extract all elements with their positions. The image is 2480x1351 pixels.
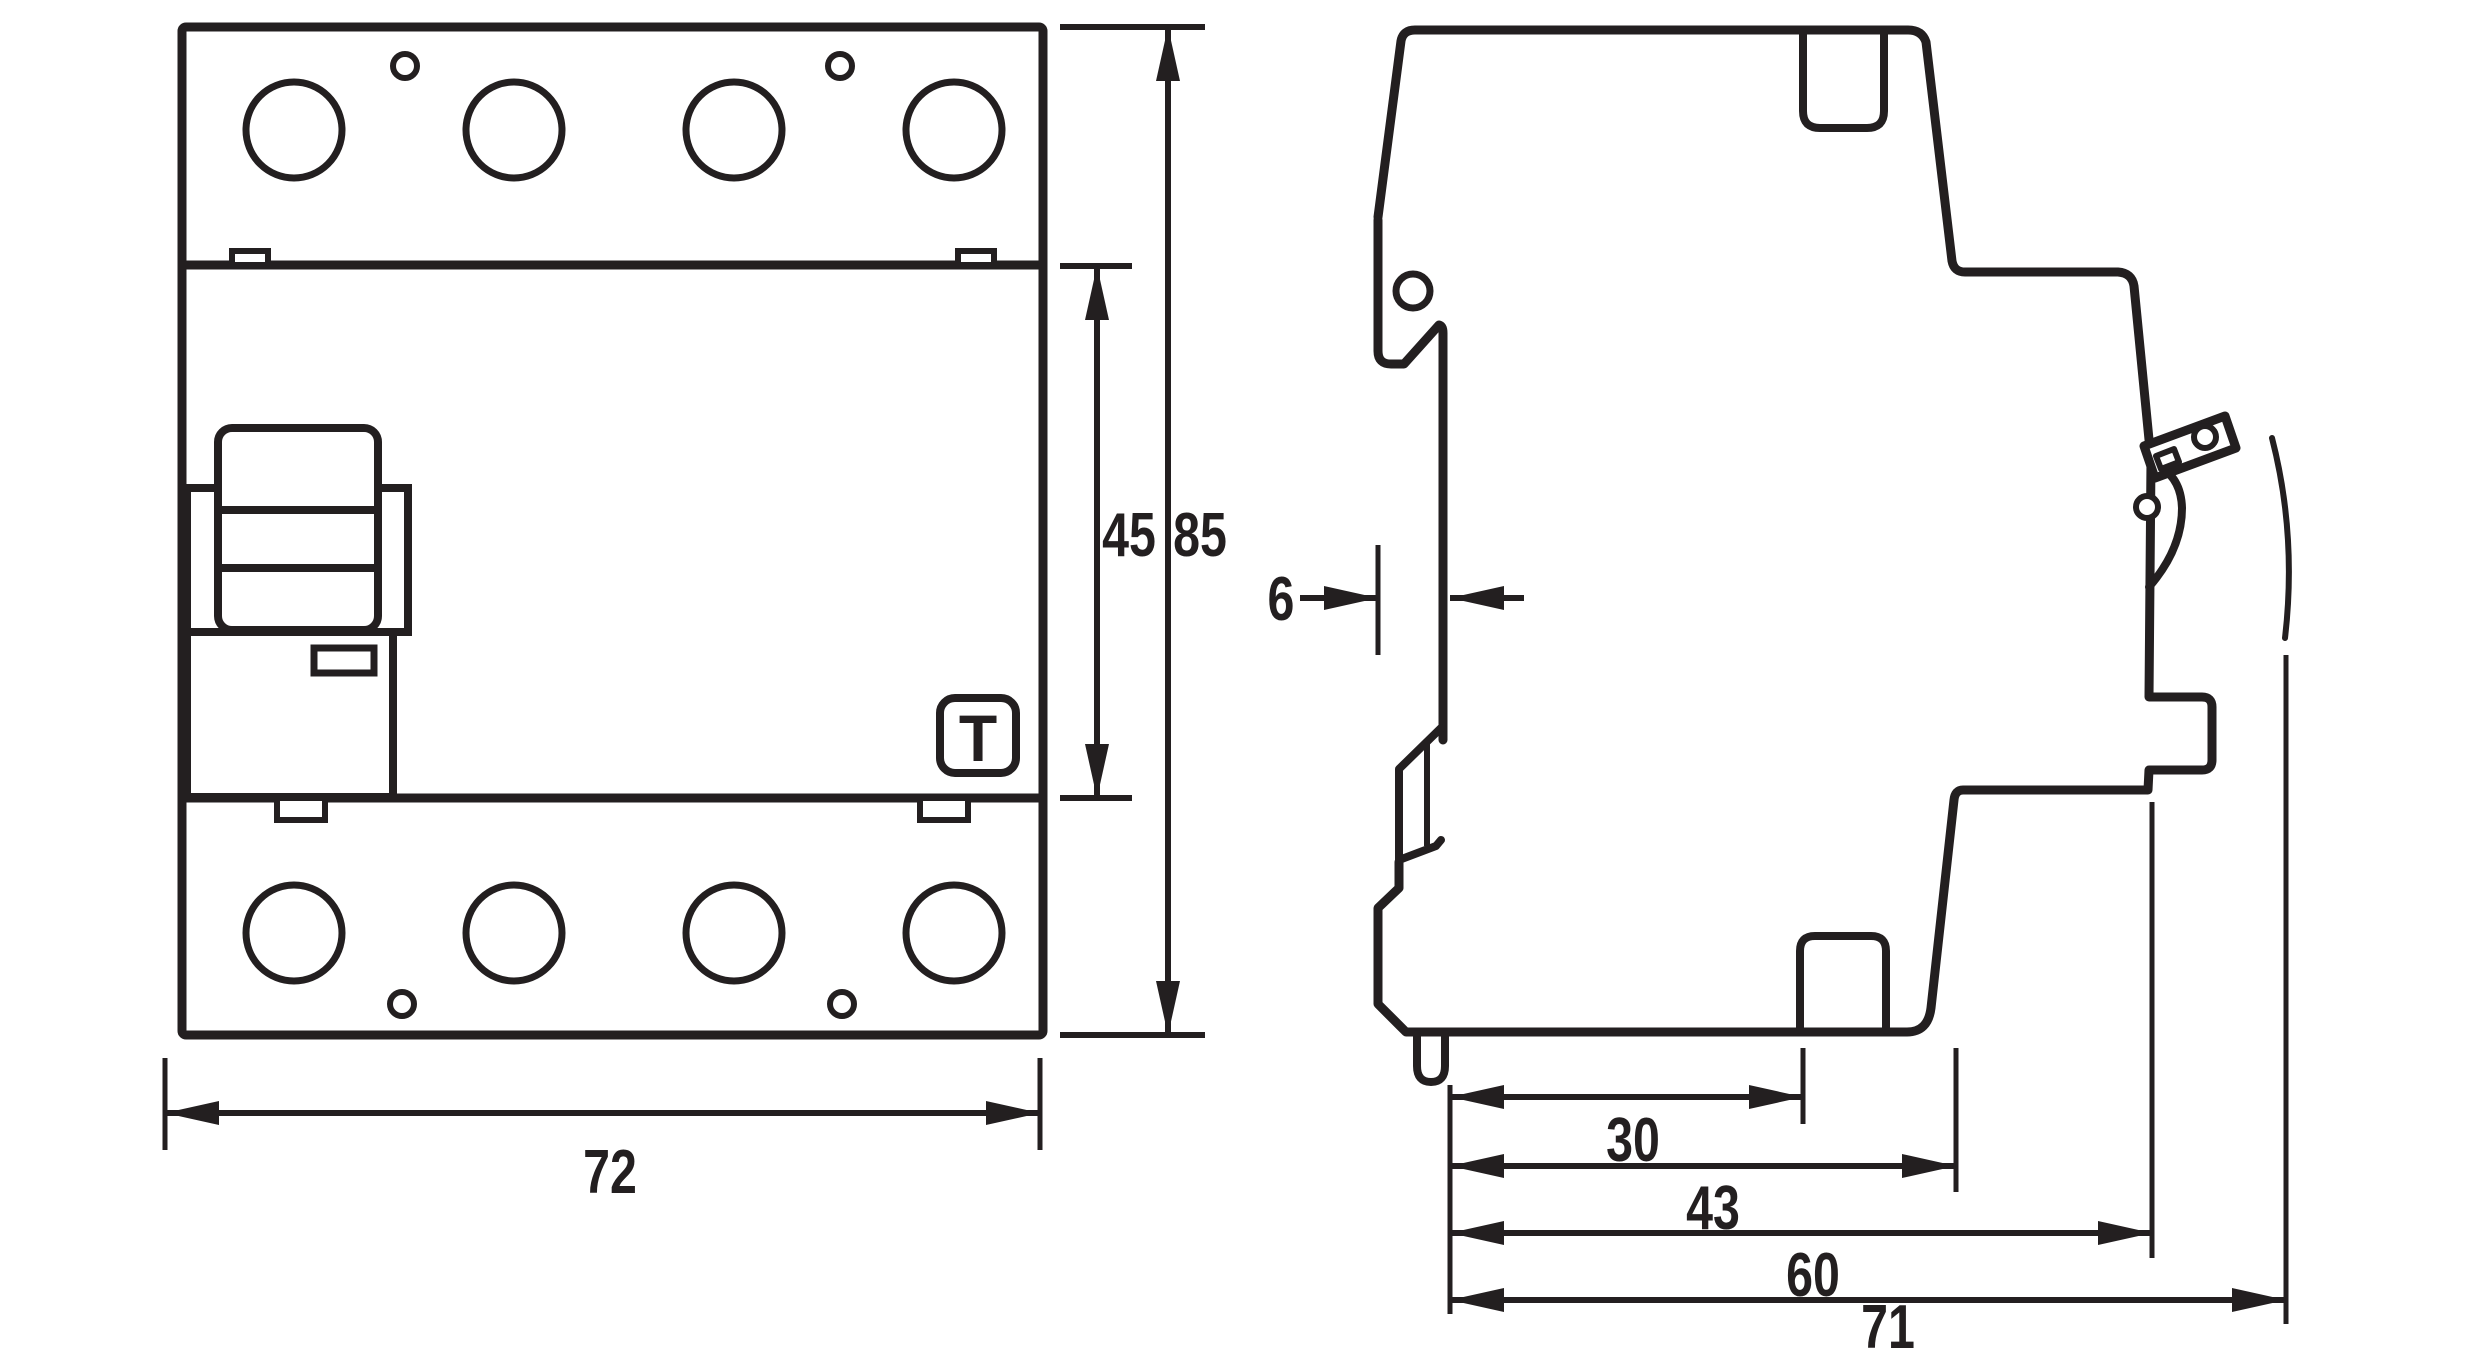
lever-hole [2194,426,2216,448]
din-rail-clip [1399,728,1441,860]
lever-swing-arc [2272,438,2289,638]
dim-label-6: 6 [1268,564,1295,633]
drawing-canvas: T 45 85 72 [0,0,2480,1351]
lever-pivot-dot [2136,496,2158,518]
divider-notch [232,251,268,265]
brand-logo: T [940,698,1016,775]
test-button [314,648,374,673]
switch-toggle [218,428,378,630]
din-foot-bottom [1800,936,1886,1030]
din-slot-top [1803,32,1884,128]
divider-notch [920,798,968,820]
technical-dimension-drawing: T 45 85 72 [0,0,2480,1351]
front-view: T [182,27,1043,1035]
din-rail-hook [1378,220,1443,740]
dim-label-71: 71 [1861,1292,1915,1351]
dim-label-72: 72 [583,1137,637,1206]
dim-label-85: 85 [1173,500,1227,569]
dim-label-45: 45 [1102,500,1156,569]
side-toggle-lever [2136,416,2289,638]
brand-t-logo-icon: T [959,702,997,776]
side-screw-hole [1396,274,1430,308]
divider-notch [277,798,325,820]
rear-foot [1417,1034,1445,1082]
side-dimensions: 6 30 43 60 71 [1268,545,2286,1351]
side-body-outline [1378,30,2212,1032]
divider-notch [958,251,994,265]
